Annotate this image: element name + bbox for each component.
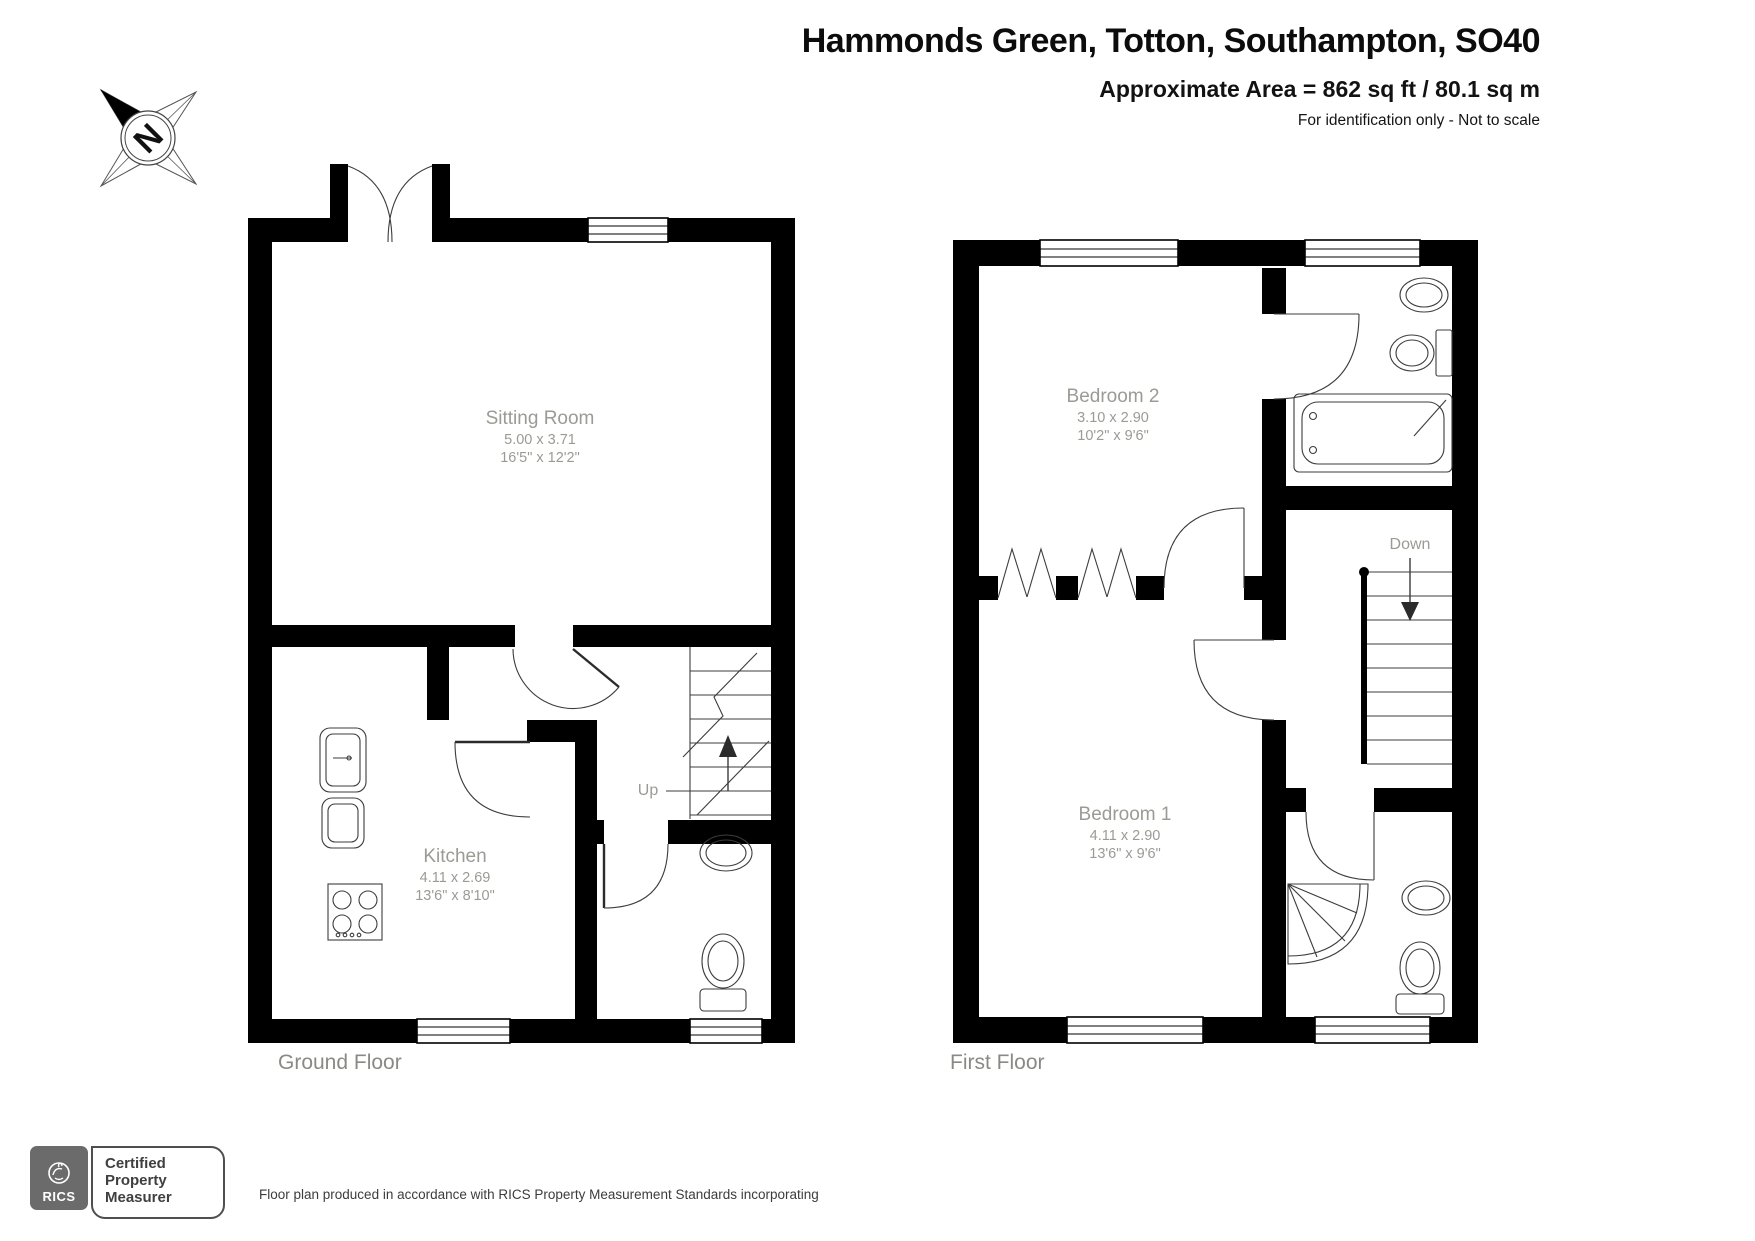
wc-door-icon — [604, 844, 668, 908]
badge-line: Property — [105, 1172, 223, 1189]
sitting-room-door-icon — [513, 649, 619, 708]
bedroom1-door-icon — [1194, 640, 1274, 720]
bathroom-door-icon — [1274, 314, 1359, 399]
wc-toilet-icon — [700, 934, 746, 1011]
shower-icon — [1288, 884, 1368, 964]
ground-floor-walls — [248, 164, 795, 1043]
bathroom-basin-icon — [1400, 278, 1448, 312]
footer: RICS Certified Property Measurer Floor p… — [30, 1146, 819, 1241]
first-floor-title: First Floor — [950, 1051, 1045, 1075]
up-arrow-icon — [719, 735, 737, 757]
rics-lion-icon — [42, 1159, 76, 1189]
footer-disclaimer: Floor plan produced in accordance with R… — [259, 1146, 819, 1241]
first-floor-plan — [953, 240, 1478, 1043]
badge-line: Measurer — [105, 1189, 223, 1206]
certified-measurer-badge: Certified Property Measurer — [91, 1146, 225, 1219]
bathroom-toilet-icon — [1390, 330, 1452, 376]
stairs-down — [1359, 558, 1452, 764]
bath-icon — [1294, 394, 1452, 472]
floor-plan-canvas: N — [0, 0, 1755, 1241]
bedroom2-door-icon — [1164, 508, 1244, 588]
wc-basin-icon — [700, 835, 752, 871]
rics-logo-text: RICS — [42, 1189, 75, 1204]
hob-icon — [328, 884, 382, 940]
badge-line: Certified — [105, 1155, 223, 1172]
down-arrow-icon — [1401, 602, 1419, 621]
first-floor-windows — [1040, 240, 1430, 1043]
rics-logo: RICS — [30, 1146, 88, 1210]
footer-line-1: Floor plan produced in accordance with R… — [259, 1186, 819, 1204]
kitchen-door-icon — [455, 742, 530, 817]
sink-icon — [320, 728, 366, 848]
stairs-up — [666, 647, 771, 819]
french-door-icon — [348, 166, 432, 242]
ground-floor-plan — [248, 164, 795, 1043]
ensuite-toilet-icon — [1396, 942, 1444, 1014]
floorplan-page: Hammonds Green, Totton, Southampton, SO4… — [0, 0, 1755, 1241]
ensuite-door-icon — [1306, 812, 1374, 880]
ground-floor-title: Ground Floor — [278, 1051, 402, 1075]
ensuite-basin-icon — [1402, 881, 1450, 915]
compass-icon: N — [101, 90, 196, 186]
